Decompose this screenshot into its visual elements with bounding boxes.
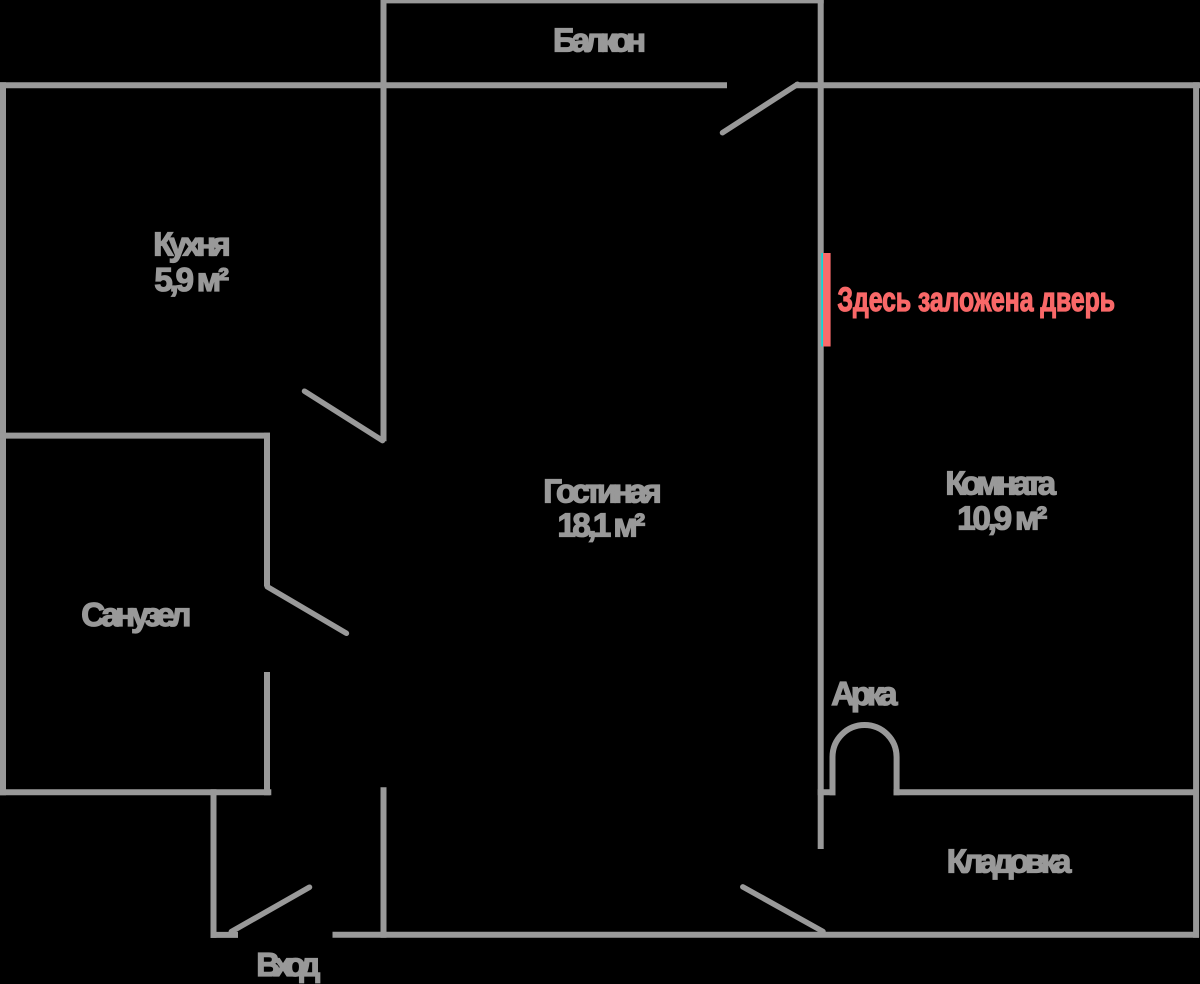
svg-text:Арка: Арка xyxy=(831,675,898,712)
svg-text:Вход: Вход xyxy=(256,946,320,983)
svg-text:5,9 м²: 5,9 м² xyxy=(154,261,229,298)
svg-text:18,1 м²: 18,1 м² xyxy=(558,506,646,543)
svg-text:Комната: Комната xyxy=(945,465,1056,502)
svg-text:Кладовка: Кладовка xyxy=(947,843,1072,880)
svg-text:Кухня: Кухня xyxy=(153,226,231,263)
svg-text:Здесь заложена дверь: Здесь заложена дверь xyxy=(838,281,1116,319)
svg-text:Гостиная: Гостиная xyxy=(543,473,662,510)
svg-text:10,9 м²: 10,9 м² xyxy=(957,499,1047,536)
svg-text:Санузел: Санузел xyxy=(81,596,191,633)
svg-text:Балкон: Балкон xyxy=(553,22,646,59)
